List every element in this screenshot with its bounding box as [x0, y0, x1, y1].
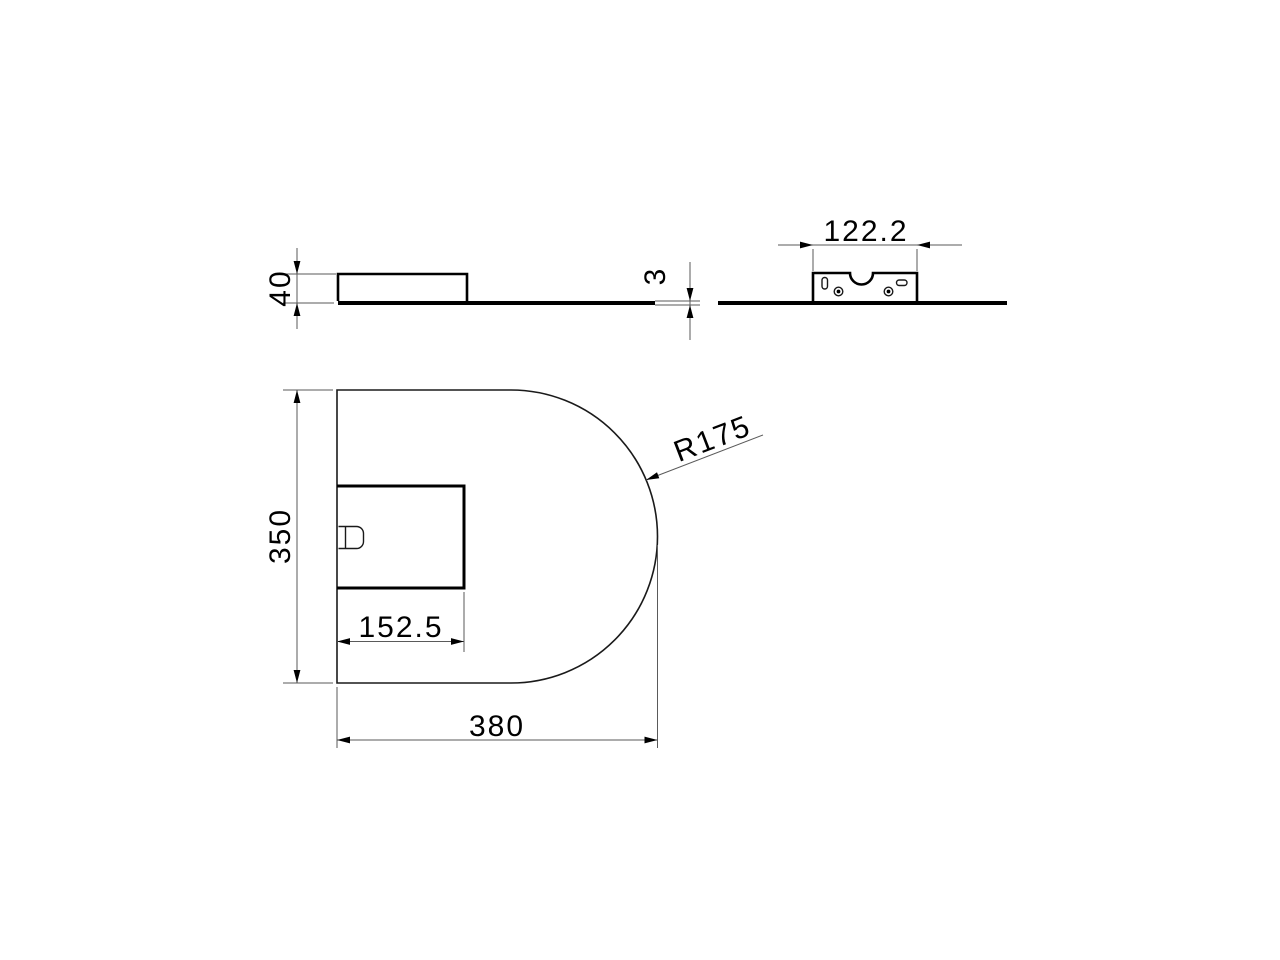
bracket-screw-center: [837, 290, 841, 294]
arrowhead: [294, 670, 301, 683]
dimension-height-40: 40: [264, 248, 336, 329]
arrowhead: [917, 242, 930, 249]
plan-latch-detail: [339, 527, 364, 549]
side-elevation-view: 40 3: [264, 248, 700, 340]
bracket-horizontal-slot: [897, 280, 908, 286]
dim-thickness-label: 3: [639, 267, 672, 286]
arrowhead: [294, 390, 301, 403]
bracket-outline: [813, 273, 917, 301]
technical-drawing-page: 40 3 122.2: [0, 0, 1280, 960]
dimension-radius-r175: R175: [646, 409, 763, 480]
dim-radius-label: R175: [669, 409, 755, 468]
dim-bracket-width-label: 122.2: [823, 215, 908, 248]
dimension-width-122-2: 122.2: [778, 215, 962, 271]
arrowhead: [337, 638, 350, 645]
arrowhead: [687, 288, 694, 301]
dim-cutout-width-label: 152.5: [358, 611, 443, 644]
drawing-canvas: 40 3 122.2: [0, 0, 1280, 960]
bracket-vertical-slot: [822, 278, 828, 290]
arrowhead: [800, 242, 813, 249]
arrowhead: [337, 737, 350, 744]
dimension-cutout-152-5: 152.5: [337, 592, 464, 652]
dimension-depth-350: 350: [264, 390, 333, 683]
plan-view: 350 152.5 380 R175: [264, 390, 763, 748]
bracket-screw-center: [887, 290, 891, 294]
arrowhead: [451, 638, 464, 645]
arrowhead: [646, 472, 659, 480]
arrowhead: [687, 305, 694, 318]
side-block-outline: [338, 274, 467, 301]
plan-cutout-rect: [337, 486, 464, 588]
dim-height-label: 40: [264, 269, 297, 306]
dimension-width-380: 380: [337, 545, 658, 748]
dim-depth-label: 350: [264, 508, 297, 564]
arrowhead: [645, 737, 658, 744]
rear-elevation-view: 122.2: [718, 215, 1007, 303]
dim-width-label: 380: [469, 710, 525, 743]
